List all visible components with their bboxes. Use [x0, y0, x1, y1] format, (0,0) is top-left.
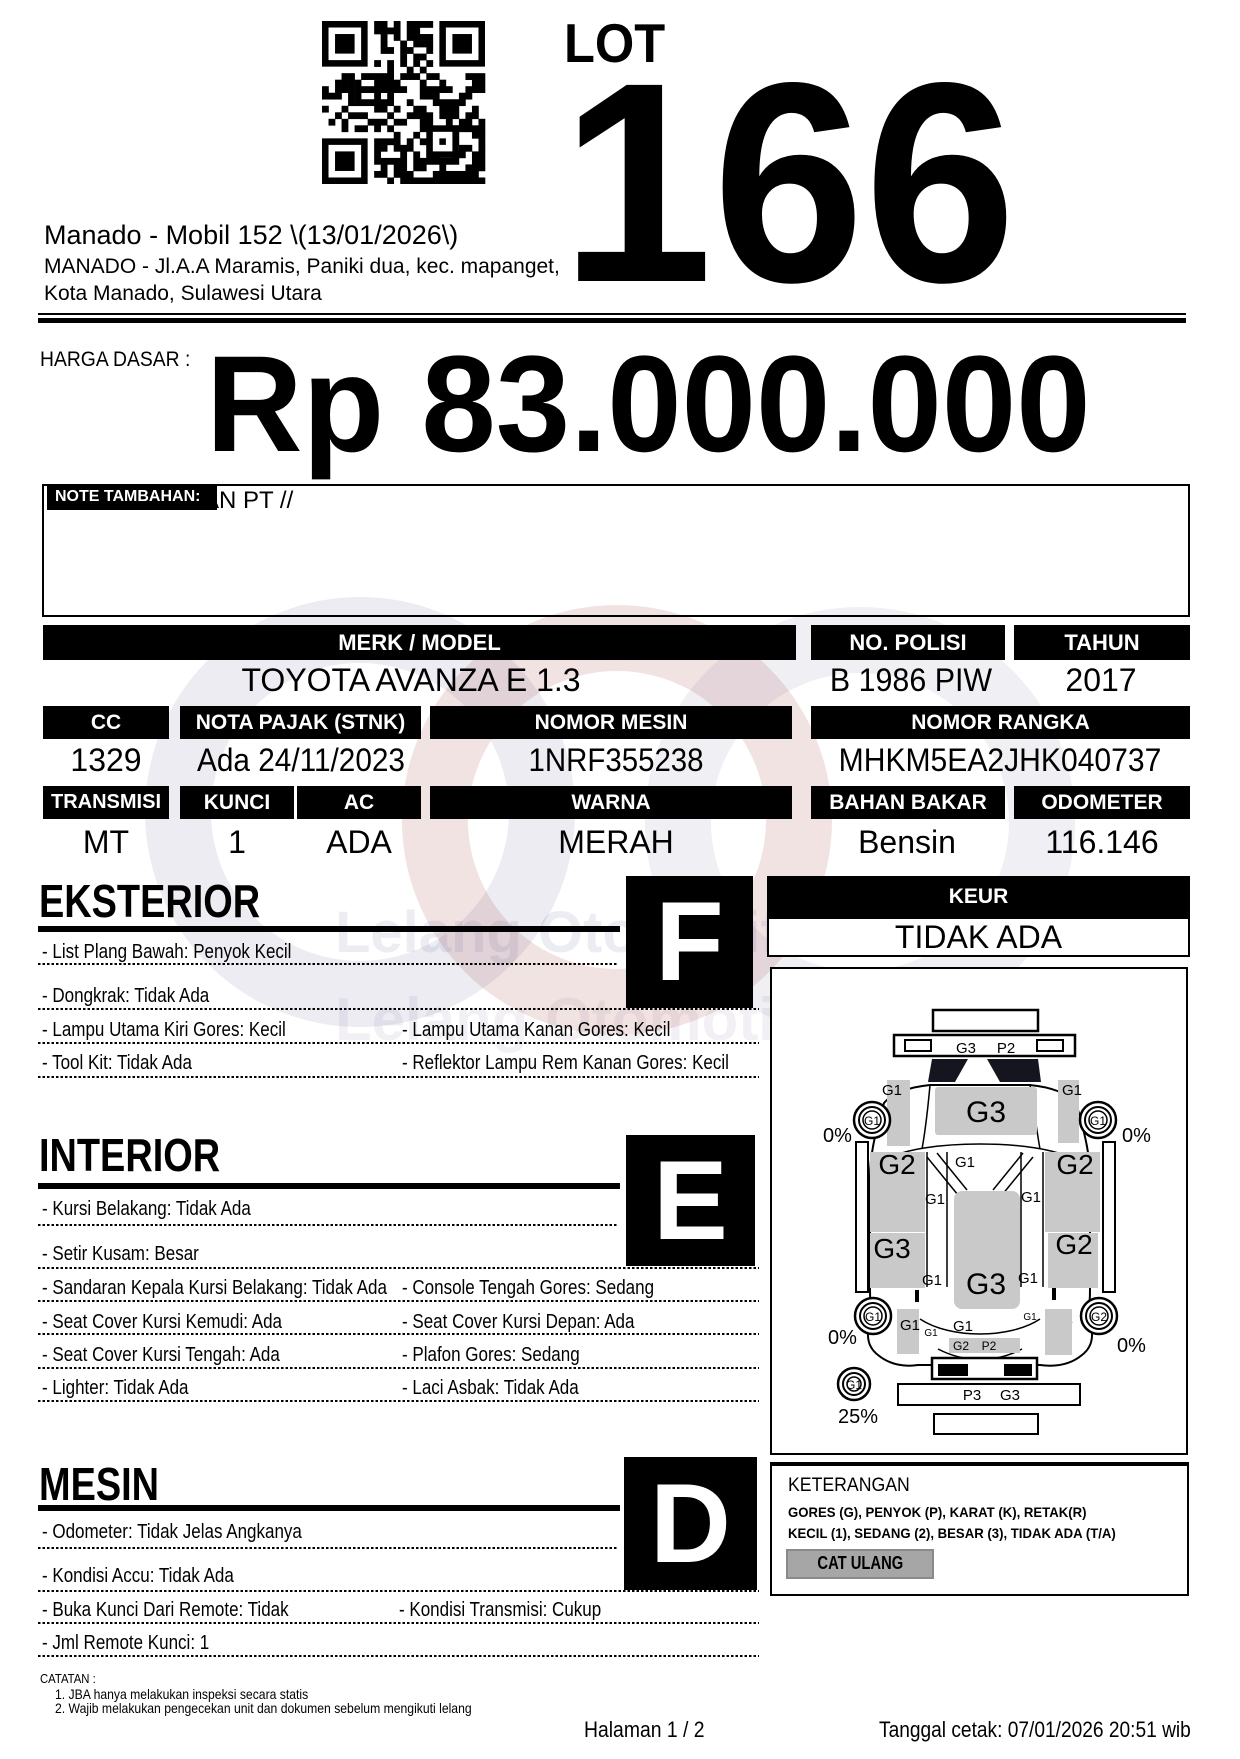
- svg-text:G1: G1: [846, 1378, 862, 1392]
- svg-text:0%: 0%: [828, 1327, 857, 1349]
- svg-text:G3: G3: [966, 1268, 1006, 1301]
- svg-text:G1: G1: [1021, 1189, 1041, 1206]
- svg-text:G2: G2: [878, 1149, 915, 1180]
- svg-text:G1: G1: [955, 1154, 975, 1171]
- svg-text:25%: 25%: [838, 1406, 878, 1428]
- svg-text:G3: G3: [966, 1096, 1006, 1129]
- svg-text:G2: G2: [1055, 1229, 1092, 1260]
- svg-text:P2: P2: [997, 1040, 1015, 1057]
- svg-text:G1: G1: [864, 1114, 880, 1128]
- svg-text:0%: 0%: [823, 1125, 852, 1147]
- svg-text:G1: G1: [924, 1328, 938, 1339]
- svg-text:G1: G1: [925, 1191, 945, 1208]
- svg-text:0%: 0%: [1117, 1335, 1146, 1357]
- svg-text:G1: G1: [1023, 1312, 1037, 1323]
- svg-text:G2: G2: [953, 1339, 969, 1353]
- svg-text:P3: P3: [963, 1387, 981, 1404]
- svg-text:G2: G2: [1091, 1310, 1107, 1324]
- svg-text:P2: P2: [982, 1339, 997, 1353]
- svg-text:G1: G1: [1090, 1114, 1106, 1128]
- svg-text:G2: G2: [1056, 1149, 1093, 1180]
- svg-text:G3: G3: [873, 1233, 910, 1264]
- svg-text:0%: 0%: [1122, 1125, 1151, 1147]
- svg-text:G1: G1: [922, 1272, 942, 1289]
- svg-text:G1: G1: [953, 1318, 973, 1335]
- svg-text:G1: G1: [900, 1317, 920, 1334]
- svg-text:G1: G1: [865, 1310, 881, 1324]
- svg-text:G3: G3: [956, 1040, 976, 1057]
- svg-text:G3: G3: [1000, 1387, 1020, 1404]
- svg-text:G1: G1: [1062, 1082, 1082, 1099]
- svg-text:G1: G1: [1018, 1270, 1038, 1287]
- svg-text:G1: G1: [882, 1082, 902, 1099]
